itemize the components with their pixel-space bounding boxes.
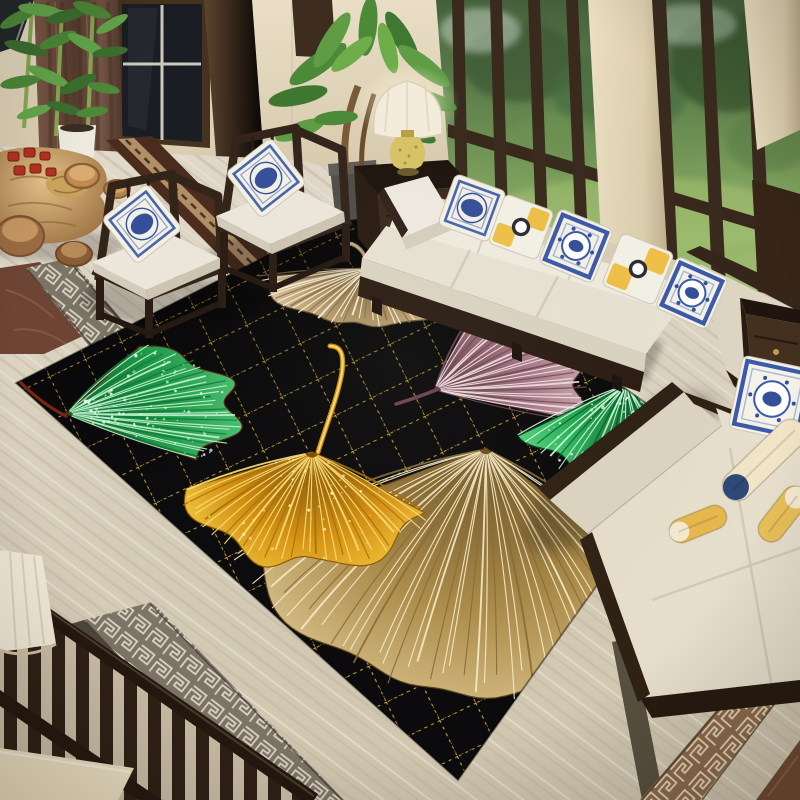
- lamp-base: [390, 137, 426, 171]
- scene-canvas: [0, 0, 800, 800]
- side-wood-panel: [752, 180, 800, 300]
- living-room-rug-photo: [0, 0, 800, 800]
- left-window-door: [114, 0, 210, 148]
